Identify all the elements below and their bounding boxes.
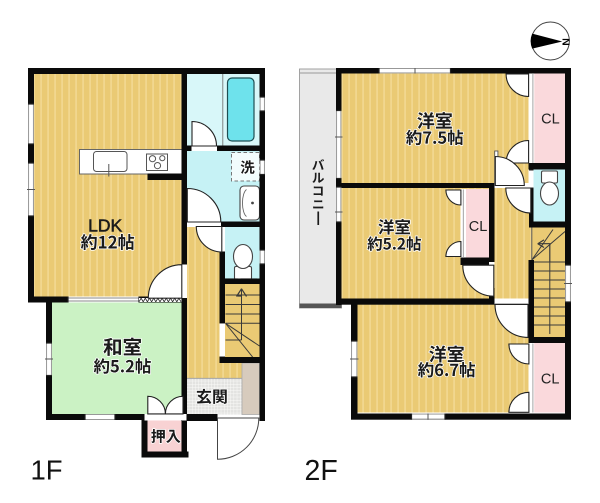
svg-text:1F: 1F xyxy=(31,455,63,486)
svg-text:N: N xyxy=(560,38,572,46)
svg-text:CL: CL xyxy=(541,372,560,388)
svg-text:CL: CL xyxy=(541,112,560,128)
svg-text:CL: CL xyxy=(469,219,488,235)
svg-text:LDK: LDK xyxy=(88,216,122,236)
svg-text:2F: 2F xyxy=(305,455,338,487)
